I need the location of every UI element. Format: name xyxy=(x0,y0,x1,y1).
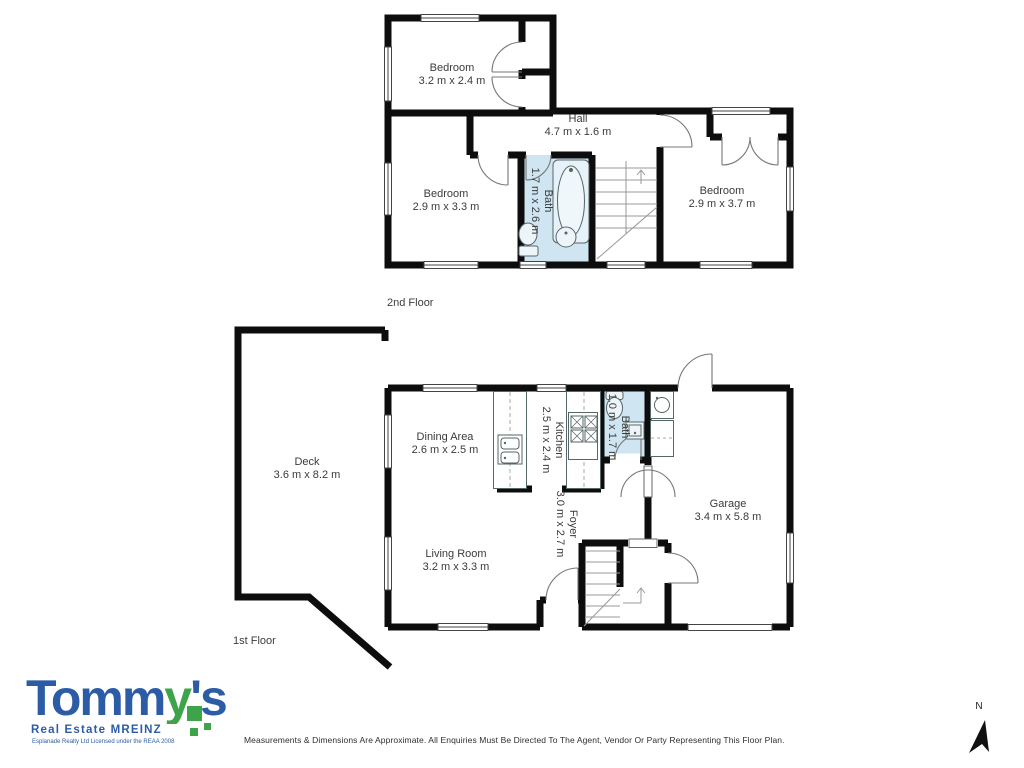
stove-icon xyxy=(569,413,598,460)
stairs-1st xyxy=(584,551,645,626)
pocket-door-slab xyxy=(629,539,657,548)
room-name: Garage xyxy=(695,498,762,511)
room-name: Bedroom xyxy=(413,188,480,201)
room-label-bath-2nd: Bath 1.7 m x 2.6 m xyxy=(528,168,554,235)
room-dims: 4.7 m x 1.6 m xyxy=(545,126,612,139)
room-name: Bath xyxy=(541,168,554,235)
room-name: Dining Area xyxy=(412,431,479,444)
room-label-bedroom-1: Bedroom 3.2 m x 2.4 m xyxy=(419,62,486,88)
room-dims: 3.4 m x 5.8 m xyxy=(695,511,762,524)
room-label-bath-1st: Bath 1.0 m x 1.7 m xyxy=(605,394,631,461)
kitchen-sink-icon xyxy=(498,435,522,464)
logo-pixel-icon xyxy=(204,723,211,730)
room-name: Bedroom xyxy=(689,185,756,198)
room-label-foyer: Foyer 3.0 m x 2.7 m xyxy=(553,491,579,558)
room-label-dining-area: Dining Area 2.6 m x 2.5 m xyxy=(412,431,479,457)
room-dims: 3.0 m x 2.7 m xyxy=(553,491,566,558)
room-dims: 2.6 m x 2.5 m xyxy=(412,444,479,457)
floorplan-page: Bedroom 3.2 m x 2.4 m Hall 4.7 m x 1.6 m… xyxy=(0,0,1024,768)
north-arrow-icon xyxy=(952,696,1012,766)
logo-word-blue: Tomm xyxy=(26,672,164,724)
stairs-2nd xyxy=(596,161,657,259)
laundry-tub-icon xyxy=(651,392,674,419)
room-name: Bedroom xyxy=(419,62,486,75)
deck-walls xyxy=(238,330,390,667)
floor-label-2nd: 2nd Floor xyxy=(387,297,433,309)
room-dims: 1.7 m x 2.6 m xyxy=(528,168,541,235)
room-label-bedroom-3: Bedroom 2.9 m x 3.7 m xyxy=(689,185,756,211)
room-label-deck: Deck 3.6 m x 8.2 m xyxy=(274,456,341,482)
room-label-hall: Hall 4.7 m x 1.6 m xyxy=(545,113,612,139)
floor-plan-2nd xyxy=(385,15,794,269)
floorplan-drawing xyxy=(0,0,1024,768)
room-name: Living Room xyxy=(423,548,490,561)
sink-icon xyxy=(556,227,576,247)
room-name: Deck xyxy=(274,456,341,469)
room-label-bedroom-2: Bedroom 2.9 m x 3.3 m xyxy=(413,188,480,214)
room-name: Hall xyxy=(545,113,612,126)
room-dims: 2.9 m x 3.7 m xyxy=(689,198,756,211)
room-name: Bath xyxy=(618,394,631,461)
room-name: Kitchen xyxy=(552,407,565,474)
room-dims: 3.2 m x 3.3 m xyxy=(423,561,490,574)
room-dims: 2.5 m x 2.4 m xyxy=(539,407,552,474)
floor-label-1st: 1st Floor xyxy=(233,635,276,647)
room-dims: 2.9 m x 3.3 m xyxy=(413,201,480,214)
room-name: Foyer xyxy=(566,491,579,558)
disclaimer-text: Measurements & Dimensions Are Approximat… xyxy=(244,735,785,745)
logo-tagline: Real Estate MREINZ xyxy=(31,724,162,736)
room-label-garage: Garage 3.4 m x 5.8 m xyxy=(695,498,762,524)
logo-pixel-icon xyxy=(187,706,202,721)
room-label-kitchen: Kitchen 2.5 m x 2.4 m xyxy=(539,407,565,474)
room-label-living-room: Living Room 3.2 m x 3.3 m xyxy=(423,548,490,574)
room-dims: 1.0 m x 1.7 m xyxy=(605,394,618,461)
logo-license: Esplanade Realty Ltd Licensed under the … xyxy=(32,739,174,745)
room-dims: 3.6 m x 8.2 m xyxy=(274,469,341,482)
room-dims: 3.2 m x 2.4 m xyxy=(419,75,486,88)
garage-cabinet xyxy=(651,421,674,457)
logo-pixel-icon xyxy=(190,728,198,736)
